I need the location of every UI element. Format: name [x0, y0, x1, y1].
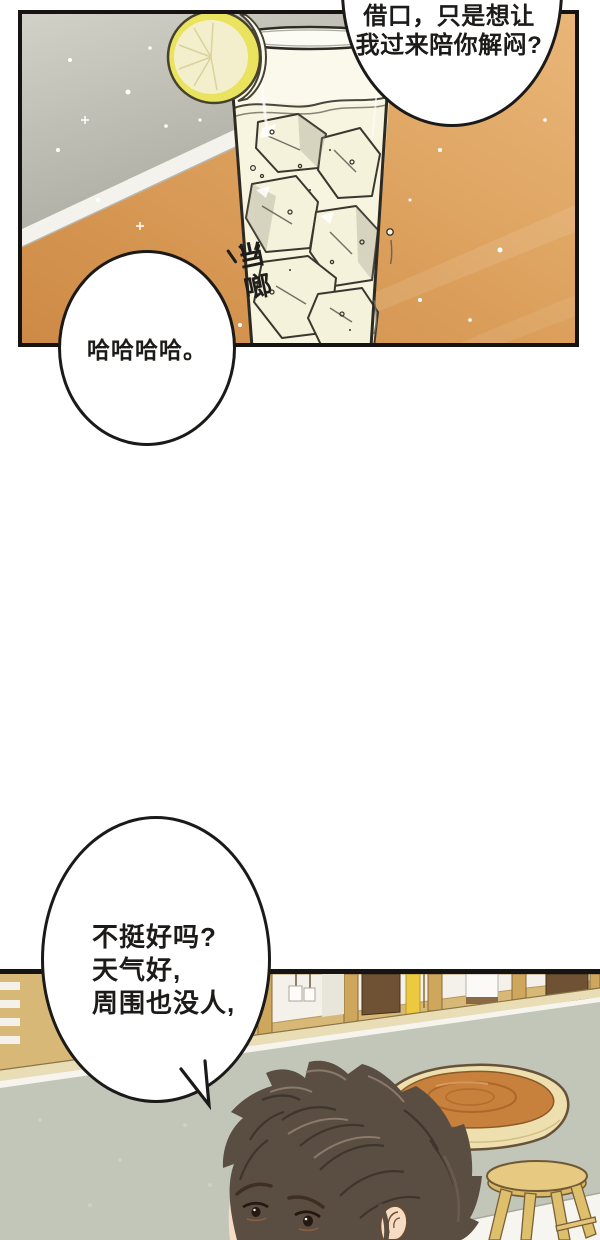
speech-bubble-weather-text: 不挺好吗? 天气好, 周围也没人,: [92, 921, 235, 1020]
speech-bubble-laugh: 哈哈哈哈。: [58, 250, 236, 446]
speech-bubble-weather-tail: [170, 1050, 220, 1112]
excuse-line-2: 我过来陪你解闷?: [340, 31, 558, 60]
comic-page: 当啷: [0, 0, 600, 1240]
laugh-text: 哈哈哈哈。: [87, 331, 207, 365]
white-card: [466, 974, 498, 998]
speech-bubble-excuse-text: 借口，只是想让 我过来陪你解闷?: [340, 2, 558, 60]
weather-line-1: 不挺好吗?: [92, 921, 235, 954]
brown-box: [362, 974, 400, 1015]
condensation-droplet: [387, 229, 393, 235]
hanging-tag: [289, 986, 302, 1001]
weather-line-2: 天气好,: [92, 954, 235, 987]
weather-line-3: 周围也没人,: [92, 987, 235, 1020]
excuse-line-1: 借口，只是想让: [340, 2, 558, 31]
